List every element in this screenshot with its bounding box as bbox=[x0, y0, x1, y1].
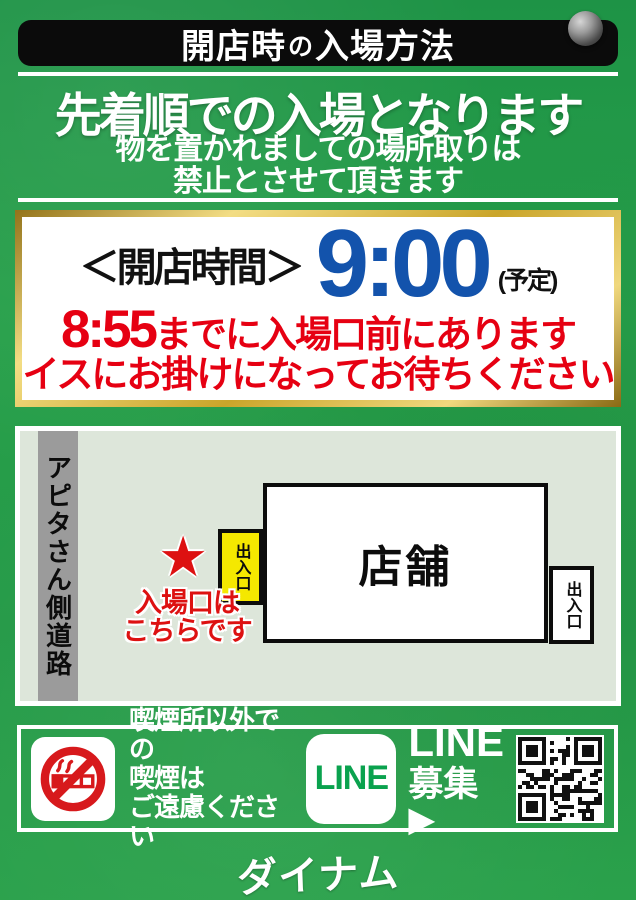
divider-line-top bbox=[18, 72, 618, 76]
line-recruit-line-1: LINE bbox=[408, 721, 504, 763]
banner-text-pre: 開店時 bbox=[181, 19, 286, 68]
store-building: 店舗 bbox=[263, 483, 548, 643]
warning-time: 8:55 bbox=[61, 300, 155, 359]
entrance-note-line-1: 入場口は bbox=[82, 589, 292, 617]
smoking-notice-line-1: 喫煙所以外での bbox=[129, 706, 302, 764]
banner-text-particle: の bbox=[288, 27, 313, 63]
entrance-left-label: 出入口 bbox=[233, 543, 249, 591]
site-map: アピタさん側道路 店舗 出入口 出入口 ★ 入場口は こちらです bbox=[15, 426, 621, 706]
warning-line-1: 8:55までに入場口前にあります bbox=[61, 309, 575, 354]
qr-code-svg bbox=[518, 737, 602, 821]
smoking-notice: 喫煙所以外での 喫煙は ご遠慮ください bbox=[129, 706, 302, 852]
warning-line-2: イスにお掛けになってお待ちください bbox=[23, 356, 614, 394]
no-smoking-icon bbox=[31, 737, 115, 821]
opening-time-value: 9:00 bbox=[316, 223, 488, 305]
brand-name: ダイナム bbox=[236, 840, 400, 900]
brand-logo: ダイナム bbox=[0, 843, 636, 900]
entry-notice-poster: 開店時の入場方法 先着順での入場となります 物を置かれましての場所取りは 禁止と… bbox=[0, 0, 636, 900]
opening-hours-label: ＜開店時間＞ bbox=[80, 235, 302, 293]
warning-rest: までに入場口前にあります bbox=[155, 314, 575, 355]
no-smoking-icon-svg bbox=[35, 741, 111, 817]
opening-hours-card: ＜開店時間＞ 9:00 (予定) 8:55までに入場口前にあります イスにお掛け… bbox=[15, 210, 621, 407]
line-app-icon-text: LINE bbox=[315, 759, 388, 798]
entrance-right-label: 出入口 bbox=[564, 581, 580, 629]
entrance-note: 入場口は こちらです bbox=[82, 589, 292, 646]
line-recruit-line-2: 募集▶ bbox=[408, 767, 504, 837]
opening-time-note: (予定) bbox=[498, 261, 557, 305]
store-building-label: 店舗 bbox=[359, 531, 453, 595]
place-holding-notice: 物を置かれましての場所取りは 禁止とさせて頂きます bbox=[0, 134, 636, 198]
road-label: アピタさん側道路 bbox=[40, 454, 77, 678]
entrance-star-icon: ★ bbox=[158, 529, 208, 585]
notice-line-2: 禁止とさせて頂きます bbox=[0, 166, 636, 198]
divider-line-bottom bbox=[18, 198, 618, 202]
qr-code bbox=[516, 735, 604, 823]
entrance-note-line-2: こちらです bbox=[82, 617, 292, 645]
opening-hours-card-inner: ＜開店時間＞ 9:00 (予定) 8:55までに入場口前にあります イスにお掛け… bbox=[22, 217, 614, 400]
notice-line-1: 物を置かれましての場所取りは bbox=[0, 134, 636, 166]
title-banner: 開店時の入場方法 bbox=[18, 20, 618, 66]
line-recruit-label: LINE 募集▶ bbox=[408, 721, 504, 837]
opening-hours-row: ＜開店時間＞ 9:00 (予定) bbox=[80, 223, 557, 305]
banner-text-post: 入場方法 bbox=[315, 19, 455, 68]
road-strip: アピタさん側道路 bbox=[38, 431, 78, 701]
line-app-icon: LINE bbox=[306, 734, 396, 824]
push-pin-icon bbox=[568, 11, 603, 46]
footer-strip: 喫煙所以外での 喫煙は ご遠慮ください LINE LINE 募集▶ bbox=[17, 725, 618, 832]
smoking-notice-line-2: 喫煙は bbox=[129, 764, 302, 793]
entrance-right: 出入口 bbox=[549, 566, 594, 644]
